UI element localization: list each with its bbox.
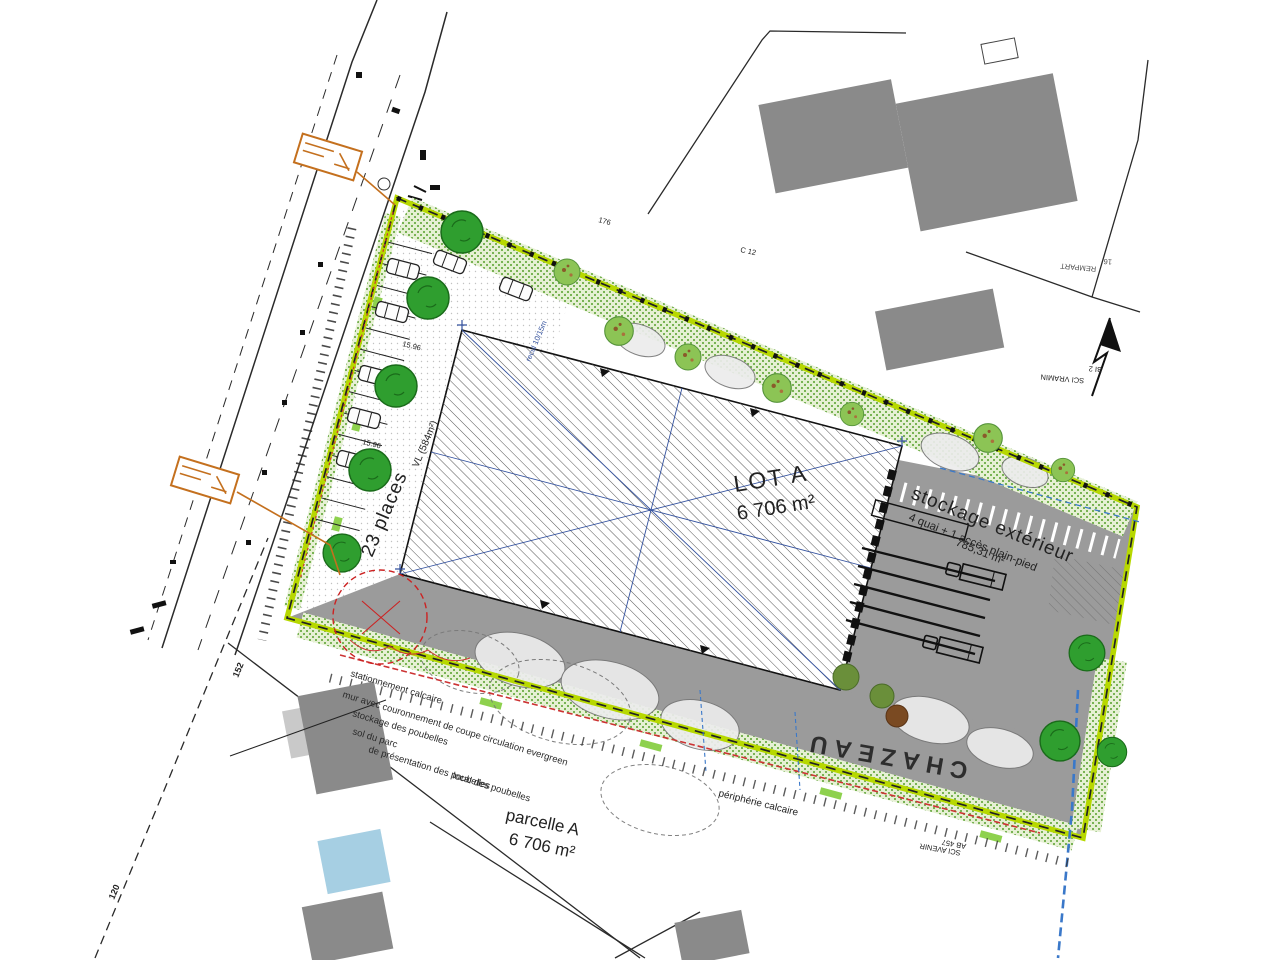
neighbor-building-s (674, 910, 749, 960)
corner-name-label: REMPART (1060, 261, 1097, 273)
dim-152-label: 152 (231, 661, 246, 679)
neighbor-owner-label: SCI VRAMIN (1040, 372, 1084, 385)
orange-note-box-1 (294, 134, 362, 181)
neighbor-ref-label: BI 2 (1088, 364, 1102, 374)
site-plan-drawing: LOT A 6 706 m² stockage extérieur 4 quai… (0, 0, 1280, 960)
dim-176-label: 176 (597, 215, 611, 227)
periphery-label: périphérie calcaire (717, 788, 799, 819)
pool (317, 829, 390, 894)
neighbor-buildings-ne (755, 32, 1102, 385)
north-arrow-icon (1092, 318, 1121, 396)
cadastre-c-label: C 12 (740, 245, 757, 257)
corner-number-label: 16 (1103, 257, 1112, 267)
orange-note-box-2 (171, 457, 239, 504)
orange-leader-1 (357, 172, 395, 205)
note-6: local des poubelles (451, 770, 532, 804)
site-plan: LOT A 6 706 m² stockage extérieur 4 quai… (0, 0, 1280, 960)
